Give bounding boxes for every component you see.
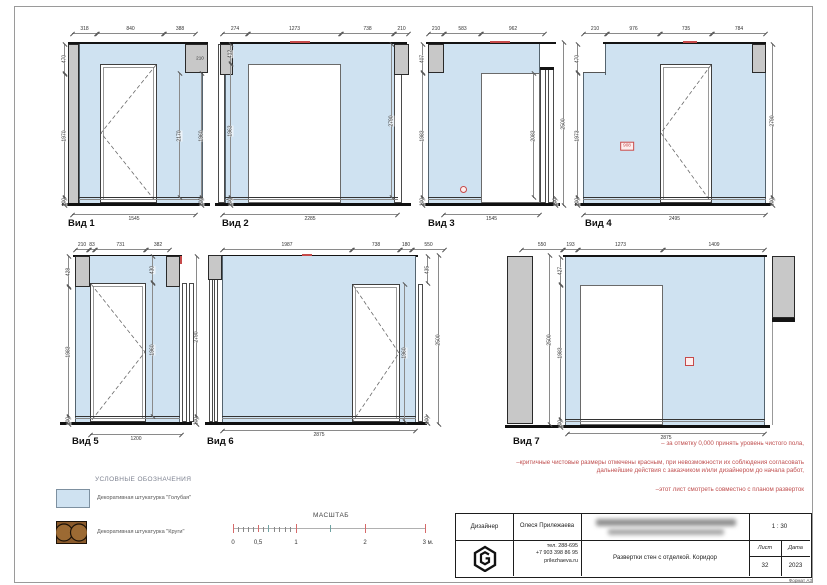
scalebar-label: 0,5 <box>254 540 262 546</box>
dimension: 550 <box>521 249 563 250</box>
dim-label: 1963 <box>229 125 234 136</box>
dim-label: 210 <box>591 27 599 32</box>
note-line: – за отметку 0,000 принять уровень чисто… <box>430 440 804 447</box>
dimension: 1983 <box>422 73 423 198</box>
dim-label: 1545 <box>128 217 139 222</box>
dimension: 210 <box>428 33 444 34</box>
scalebar-tick <box>425 524 426 533</box>
scalebar-label: 2 <box>363 540 366 546</box>
dimension: 100 <box>560 420 561 428</box>
dimension: 738 <box>352 249 400 250</box>
concrete-column <box>507 256 533 424</box>
legend-title: УСЛОВНЫЕ ОБОЗНАЧЕНИЯ <box>95 476 191 483</box>
wall-edge <box>772 318 795 322</box>
view-2: 274 1273 738 210 412 1963 100 2790 2285 … <box>215 25 413 230</box>
dimension: 100 <box>68 417 69 425</box>
dimension: 1960 <box>152 283 153 417</box>
dim-label: 193 <box>566 243 574 248</box>
concrete-box <box>208 255 222 280</box>
dimension: 210 <box>583 33 607 34</box>
scalebar-title: МАСШТАБ <box>300 512 362 519</box>
dimension: 430 <box>152 256 153 283</box>
view-title: Вид 3 <box>428 218 455 229</box>
wall-jamb <box>214 260 218 422</box>
dimension: 100 <box>422 198 423 206</box>
dim-label: 1960 <box>151 344 156 355</box>
dim-label: 1273 <box>615 243 626 248</box>
dimension: 976 <box>607 33 660 34</box>
dim-label: 100 <box>421 198 426 206</box>
view-title: Вид 1 <box>68 218 95 229</box>
sheet-value: 32 <box>749 556 781 576</box>
dim-label: 976 <box>629 27 637 32</box>
dim-label: 1200 <box>130 437 141 442</box>
note-line: –этот лист смотреть совместно с планом р… <box>430 486 804 493</box>
scalebar-label: 1 <box>294 540 297 546</box>
dimension: 962 <box>481 33 545 34</box>
dim-label: 738 <box>363 27 371 32</box>
dim-label: 583 <box>458 27 466 32</box>
view-5: 210 83 731 382 428 1983 100 430 1960 279… <box>55 240 200 452</box>
dim-label: 100 <box>559 420 564 428</box>
dim-label: 735 <box>682 27 690 32</box>
dim-label: 470 <box>63 55 68 63</box>
dimension: 427 <box>560 257 561 285</box>
dimension: 1987 <box>222 249 352 250</box>
phone-2: +7 903 398 86 95 <box>516 550 578 557</box>
red-marker <box>685 357 694 366</box>
title-block: Дизайнер Олеся Прилежаева 1 : 30 тел. 28… <box>455 513 812 578</box>
dimension: 100 <box>577 198 578 206</box>
dim-label: 100 <box>554 198 559 206</box>
dimension: 210 <box>75 249 89 250</box>
dim-label: 2500 <box>548 334 553 345</box>
dim-label: 83 <box>89 243 95 248</box>
red-mark <box>683 41 697 43</box>
dimension: 100 <box>772 198 773 206</box>
dimension: 382 <box>146 249 170 250</box>
sheet-label: Лист <box>749 540 781 556</box>
scalebar-tick <box>285 527 286 532</box>
dim-label: 2285 <box>304 217 315 222</box>
red-mark <box>302 254 312 256</box>
view-6: 1987 738 180 550 1960 435 2500 100 2875 … <box>195 240 447 452</box>
wall-edge <box>540 67 554 70</box>
dimension: 1983 <box>560 285 561 420</box>
plinth <box>225 197 398 200</box>
red-mark <box>490 41 510 43</box>
legend-swatch-blue <box>56 489 90 508</box>
dimension: 2790 <box>772 44 773 198</box>
logo-icon <box>472 545 498 572</box>
dim-label: 1273 <box>289 27 300 32</box>
circles-pattern <box>56 521 87 544</box>
dimension: 100 <box>230 198 231 206</box>
concrete-box <box>752 44 766 73</box>
scalebar-tick <box>290 527 291 532</box>
dimension: 274 <box>222 33 248 34</box>
dim-label: 318 <box>80 27 88 32</box>
dimension: 318 <box>72 33 97 34</box>
dim-label: 100 <box>200 198 205 206</box>
dimension: 1273 <box>578 249 663 250</box>
wall-notch-edge <box>583 72 606 73</box>
plinth <box>79 197 203 200</box>
dimension: 1983 <box>68 287 69 417</box>
scalebar-tick <box>365 524 366 533</box>
dim-label: 1973 <box>576 130 581 141</box>
door-swing <box>352 284 400 422</box>
floor-line <box>575 203 772 206</box>
door-opening <box>248 64 341 203</box>
view-1: 318 840 388 210 470 1970 100 2170 1960 1… <box>60 25 212 230</box>
dim-label: 550 <box>538 243 546 248</box>
view-title: Вид 6 <box>207 436 234 447</box>
site-link[interactable]: prilezhaeva.ru <box>516 558 578 565</box>
dimension: 738 <box>341 33 394 34</box>
dimension: 2170 <box>179 73 180 198</box>
legend-label: Декоративная штукатурка "Круги" <box>97 529 184 535</box>
dim-label: 2790 <box>771 115 776 126</box>
drawing-sheet: 318 840 388 210 470 1970 100 2170 1960 1… <box>0 0 827 585</box>
dim-label: 407 <box>421 54 426 62</box>
dimension: 470 <box>577 44 578 73</box>
concrete-box <box>772 256 795 318</box>
dimension: 193 <box>563 249 578 250</box>
dim-label: 738 <box>372 243 380 248</box>
scalebar-tick <box>238 527 239 532</box>
drawing-title: Развертки стен с отделкой. Коридор <box>581 540 749 576</box>
dim-label: 2500 <box>437 334 442 345</box>
dimension: 2500 <box>563 42 564 206</box>
dimension: 731 <box>95 249 146 250</box>
dim-label: 2083 <box>532 130 537 141</box>
dimension: 1960 <box>201 73 202 198</box>
dimension: 100 <box>427 416 428 424</box>
dim-label: 427 <box>559 267 564 275</box>
plinth <box>222 416 416 419</box>
dimension: 1200 <box>90 434 182 435</box>
dimension: 1545 <box>443 214 540 215</box>
dim-label: 1983 <box>67 346 72 357</box>
date-label: Дата <box>781 540 810 556</box>
dimension: 1963 <box>230 64 231 198</box>
dim-label: 430 <box>151 265 156 273</box>
dimension: 435 <box>427 256 428 284</box>
dim-label: 1983 <box>421 130 426 141</box>
scalebar-tick <box>279 527 280 532</box>
door-swing <box>660 64 712 203</box>
dim-label: 210 <box>196 56 204 61</box>
designer-contacts: тел. 288-695 +7 903 398 86 95 prilezhaev… <box>516 543 578 565</box>
dim-label: 274 <box>231 27 239 32</box>
dimension: 428 <box>68 256 69 287</box>
date-value: 2023 <box>781 556 810 576</box>
dim-label: 2495 <box>669 217 680 222</box>
dim-label: 962 <box>509 27 517 32</box>
wall-edge <box>772 322 773 425</box>
floor-line <box>60 422 192 425</box>
note-line: –критичные чистовые размеры отмечены кра… <box>430 459 804 466</box>
dim-label: 2500 <box>562 118 567 129</box>
dim-label: 180 <box>402 243 410 248</box>
dim-label: 1409 <box>708 243 719 248</box>
dim-label: 840 <box>126 27 134 32</box>
dim-label: 470 <box>576 54 581 62</box>
door-swing <box>90 283 146 422</box>
dimension: 2875 <box>567 433 765 434</box>
floor-line <box>205 422 427 425</box>
wall-jamb <box>540 69 546 203</box>
dimension: 583 <box>444 33 481 34</box>
dimension: 100 <box>64 198 65 206</box>
view-title: Вид 2 <box>222 218 249 229</box>
dimension: 2285 <box>222 214 398 215</box>
dim-label: 2875 <box>313 433 324 438</box>
dim-label: 100 <box>426 416 431 424</box>
concrete-box <box>220 44 233 75</box>
dim-label: 1970 <box>63 130 68 141</box>
dimension: 1960 <box>404 284 405 422</box>
designer-label: Дизайнер <box>456 514 513 540</box>
floor-line <box>215 203 411 206</box>
plinth <box>75 416 180 419</box>
view-title: Вид 5 <box>72 436 99 447</box>
note-line: дальнейшие действия с заказчиком и/или д… <box>430 467 804 474</box>
dimension: 100 <box>201 198 202 206</box>
dim-label: 210 <box>78 243 86 248</box>
concrete-column <box>68 44 79 206</box>
scalebar-tick <box>296 524 297 533</box>
scalebar-tick <box>253 527 254 532</box>
dimension: 2790 <box>391 44 392 198</box>
scalebar-tick <box>258 525 259 532</box>
dimension: 2495 <box>583 214 766 215</box>
dimension: 407 <box>422 44 423 73</box>
red-mark <box>290 41 310 43</box>
dimension: 550 <box>412 249 445 250</box>
wall-jamb <box>209 260 213 422</box>
scalebar-tick <box>268 525 269 532</box>
dimension: 735 <box>660 33 712 34</box>
dim-label: 210 <box>432 27 440 32</box>
door-opening <box>580 285 663 425</box>
dim-label: 1545 <box>486 217 497 222</box>
dim-label: 1983 <box>559 347 564 358</box>
concrete-box <box>428 44 444 73</box>
legend-swatch-circles <box>56 521 87 544</box>
view-7: 550 193 1273 1409 2500 427 1983 100 2875… <box>505 240 805 452</box>
dim-label: 388 <box>176 27 184 32</box>
door-swing <box>100 64 157 203</box>
dimension: 1273 <box>248 33 341 34</box>
dimension: 412 <box>230 44 231 64</box>
dim-label: 100 <box>771 198 776 206</box>
dimension: 1545 <box>72 214 196 215</box>
view-4: 210 976 735 784 908 470 1973 100 2790 10… <box>575 25 790 230</box>
scalebar-label: 3 м. <box>423 540 434 546</box>
dim-label: 731 <box>116 243 124 248</box>
dim-label: 428 <box>67 267 72 275</box>
dimension: 388 <box>164 33 196 34</box>
dim-label: 435 <box>426 266 431 274</box>
dimension: 2083 <box>533 73 534 198</box>
red-mark <box>180 256 182 264</box>
dimension: 784 <box>712 33 766 34</box>
wall-jamb <box>189 283 194 422</box>
view-3: 210 583 962 407 1983 100 2083 2500 100 1… <box>400 25 575 230</box>
red-dim-label: 908 <box>620 142 634 151</box>
dimension: 470 <box>64 44 65 74</box>
designer-logo <box>456 540 513 576</box>
dimension: 100 <box>555 198 556 206</box>
scale-value: 1 : 30 <box>749 514 810 540</box>
dim-label: 100 <box>67 417 72 425</box>
wall-jamb <box>548 69 554 203</box>
dim-label: 382 <box>154 243 162 248</box>
dim-label: 2790 <box>390 115 395 126</box>
scalebar-tick <box>330 525 331 532</box>
dimension: 2500 <box>438 255 439 425</box>
concrete-box <box>166 256 180 287</box>
wall-jamb <box>418 284 423 422</box>
dim-label: 1960 <box>200 130 205 141</box>
plinth <box>565 419 765 422</box>
phone-1: тел. 288-695 <box>516 543 578 550</box>
dimension: 2875 <box>222 430 416 431</box>
concrete-box <box>75 256 90 287</box>
dim-label: 1987 <box>281 243 292 248</box>
dim-label: 100 <box>229 198 234 206</box>
scalebar-tick <box>274 527 275 532</box>
format-label: Формат А3 <box>740 578 812 583</box>
dimension: 1970 <box>64 74 65 198</box>
dimension: 1973 <box>577 73 578 198</box>
legend-label: Декоративная штукатурка "Голубая" <box>97 495 191 501</box>
plinth <box>583 197 766 200</box>
scalebar-tick <box>243 527 244 532</box>
plinth <box>428 197 481 200</box>
dim-label: 412 <box>229 50 234 58</box>
dimension: 1409 <box>663 249 765 250</box>
scalebar-tick <box>248 527 249 532</box>
dimension: 840 <box>97 33 164 34</box>
red-marker <box>460 186 467 193</box>
dim-label: 100 <box>576 198 581 206</box>
scalebar-tick <box>233 524 234 533</box>
scalebar-tick <box>263 527 264 532</box>
dim-label: 784 <box>735 27 743 32</box>
floor-line <box>62 203 210 206</box>
dim-label: 550 <box>424 243 432 248</box>
scalebar-label: 0 <box>231 540 234 546</box>
dim-label: 100 <box>63 198 68 206</box>
floor-line <box>422 203 560 206</box>
floor-line <box>505 425 770 428</box>
dim-label: 1960 <box>403 347 408 358</box>
view-title: Вид 4 <box>585 218 612 229</box>
dimension: 2500 <box>549 255 550 425</box>
dim-label: 2170 <box>178 130 183 141</box>
wall-jamb <box>182 283 187 422</box>
designer-name: Олеся Прилежаева <box>513 514 581 540</box>
